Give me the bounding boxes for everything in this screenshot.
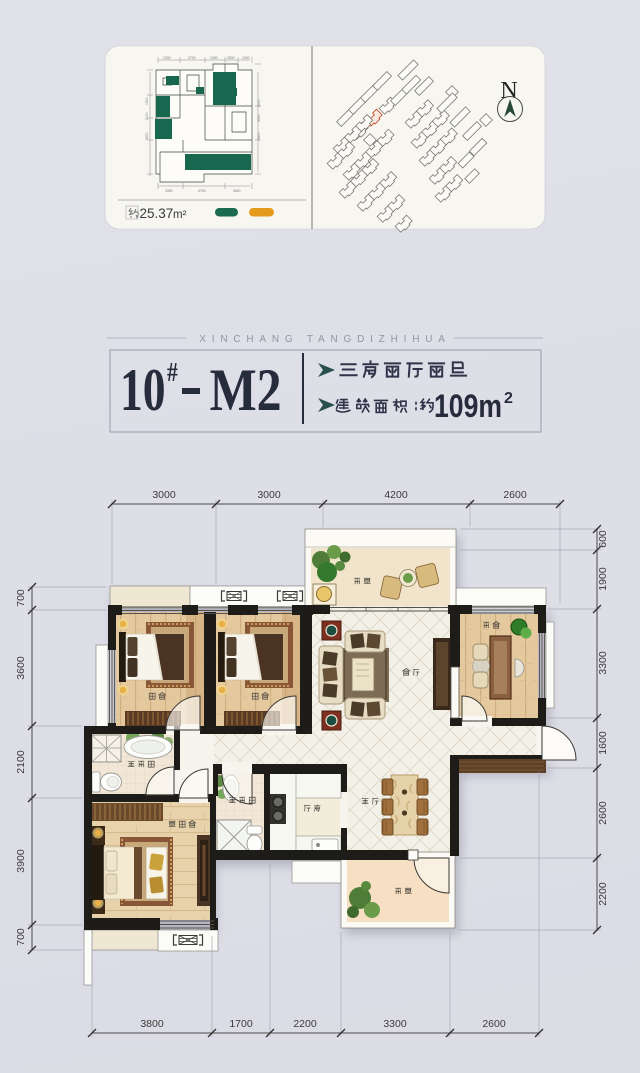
svg-text:25.37: 25.37: [140, 206, 174, 221]
svg-text:1700: 1700: [229, 1018, 253, 1030]
svg-text:3800: 3800: [140, 1018, 164, 1030]
svg-text:#: #: [167, 358, 178, 388]
svg-text:M2: M2: [210, 357, 282, 423]
svg-text:1600: 1600: [597, 731, 609, 755]
svg-text:1900: 1900: [597, 567, 609, 591]
svg-text:3600: 3600: [233, 189, 241, 193]
svg-text:3000: 3000: [257, 489, 281, 501]
svg-text:2500: 2500: [227, 56, 235, 60]
svg-text:3900: 3900: [15, 849, 27, 873]
svg-text:2600: 2600: [503, 489, 527, 501]
svg-text:2000: 2000: [145, 112, 149, 120]
svg-text:109m: 109m: [434, 388, 502, 424]
svg-text:3300: 3300: [597, 651, 609, 675]
svg-text:2600: 2600: [597, 801, 609, 825]
svg-text:m²: m²: [173, 209, 187, 221]
svg-text:4200: 4200: [384, 489, 408, 501]
svg-text:1000: 1000: [210, 56, 218, 60]
svg-text:2600: 2600: [482, 1018, 506, 1030]
svg-text:N: N: [500, 78, 517, 104]
svg-text:3000: 3000: [152, 489, 176, 501]
svg-text:3300: 3300: [165, 189, 173, 193]
svg-text:700: 700: [15, 928, 27, 946]
svg-text:2000: 2000: [257, 99, 261, 107]
svg-text:2100: 2100: [15, 750, 27, 774]
svg-text:3300: 3300: [383, 1018, 407, 1030]
svg-text:600: 600: [597, 530, 609, 548]
svg-text:4700: 4700: [198, 189, 206, 193]
svg-text:3600: 3600: [15, 656, 27, 680]
svg-text:2: 2: [504, 390, 513, 407]
svg-text:3500: 3500: [257, 114, 261, 122]
svg-text:1000: 1000: [163, 56, 171, 60]
svg-text:2700: 2700: [188, 56, 196, 60]
svg-text:5600: 5600: [257, 132, 261, 140]
svg-text:2200: 2200: [597, 882, 609, 906]
svg-text:10: 10: [120, 357, 166, 423]
svg-text:1000: 1000: [242, 56, 250, 60]
svg-text:XINCHANG TANGDIZHIHUA: XINCHANG TANGDIZHIHUA: [199, 334, 450, 345]
svg-text:3600: 3600: [145, 132, 149, 140]
svg-text:1500: 1500: [145, 97, 149, 105]
svg-text:700: 700: [15, 589, 27, 607]
svg-text:2200: 2200: [293, 1018, 317, 1030]
